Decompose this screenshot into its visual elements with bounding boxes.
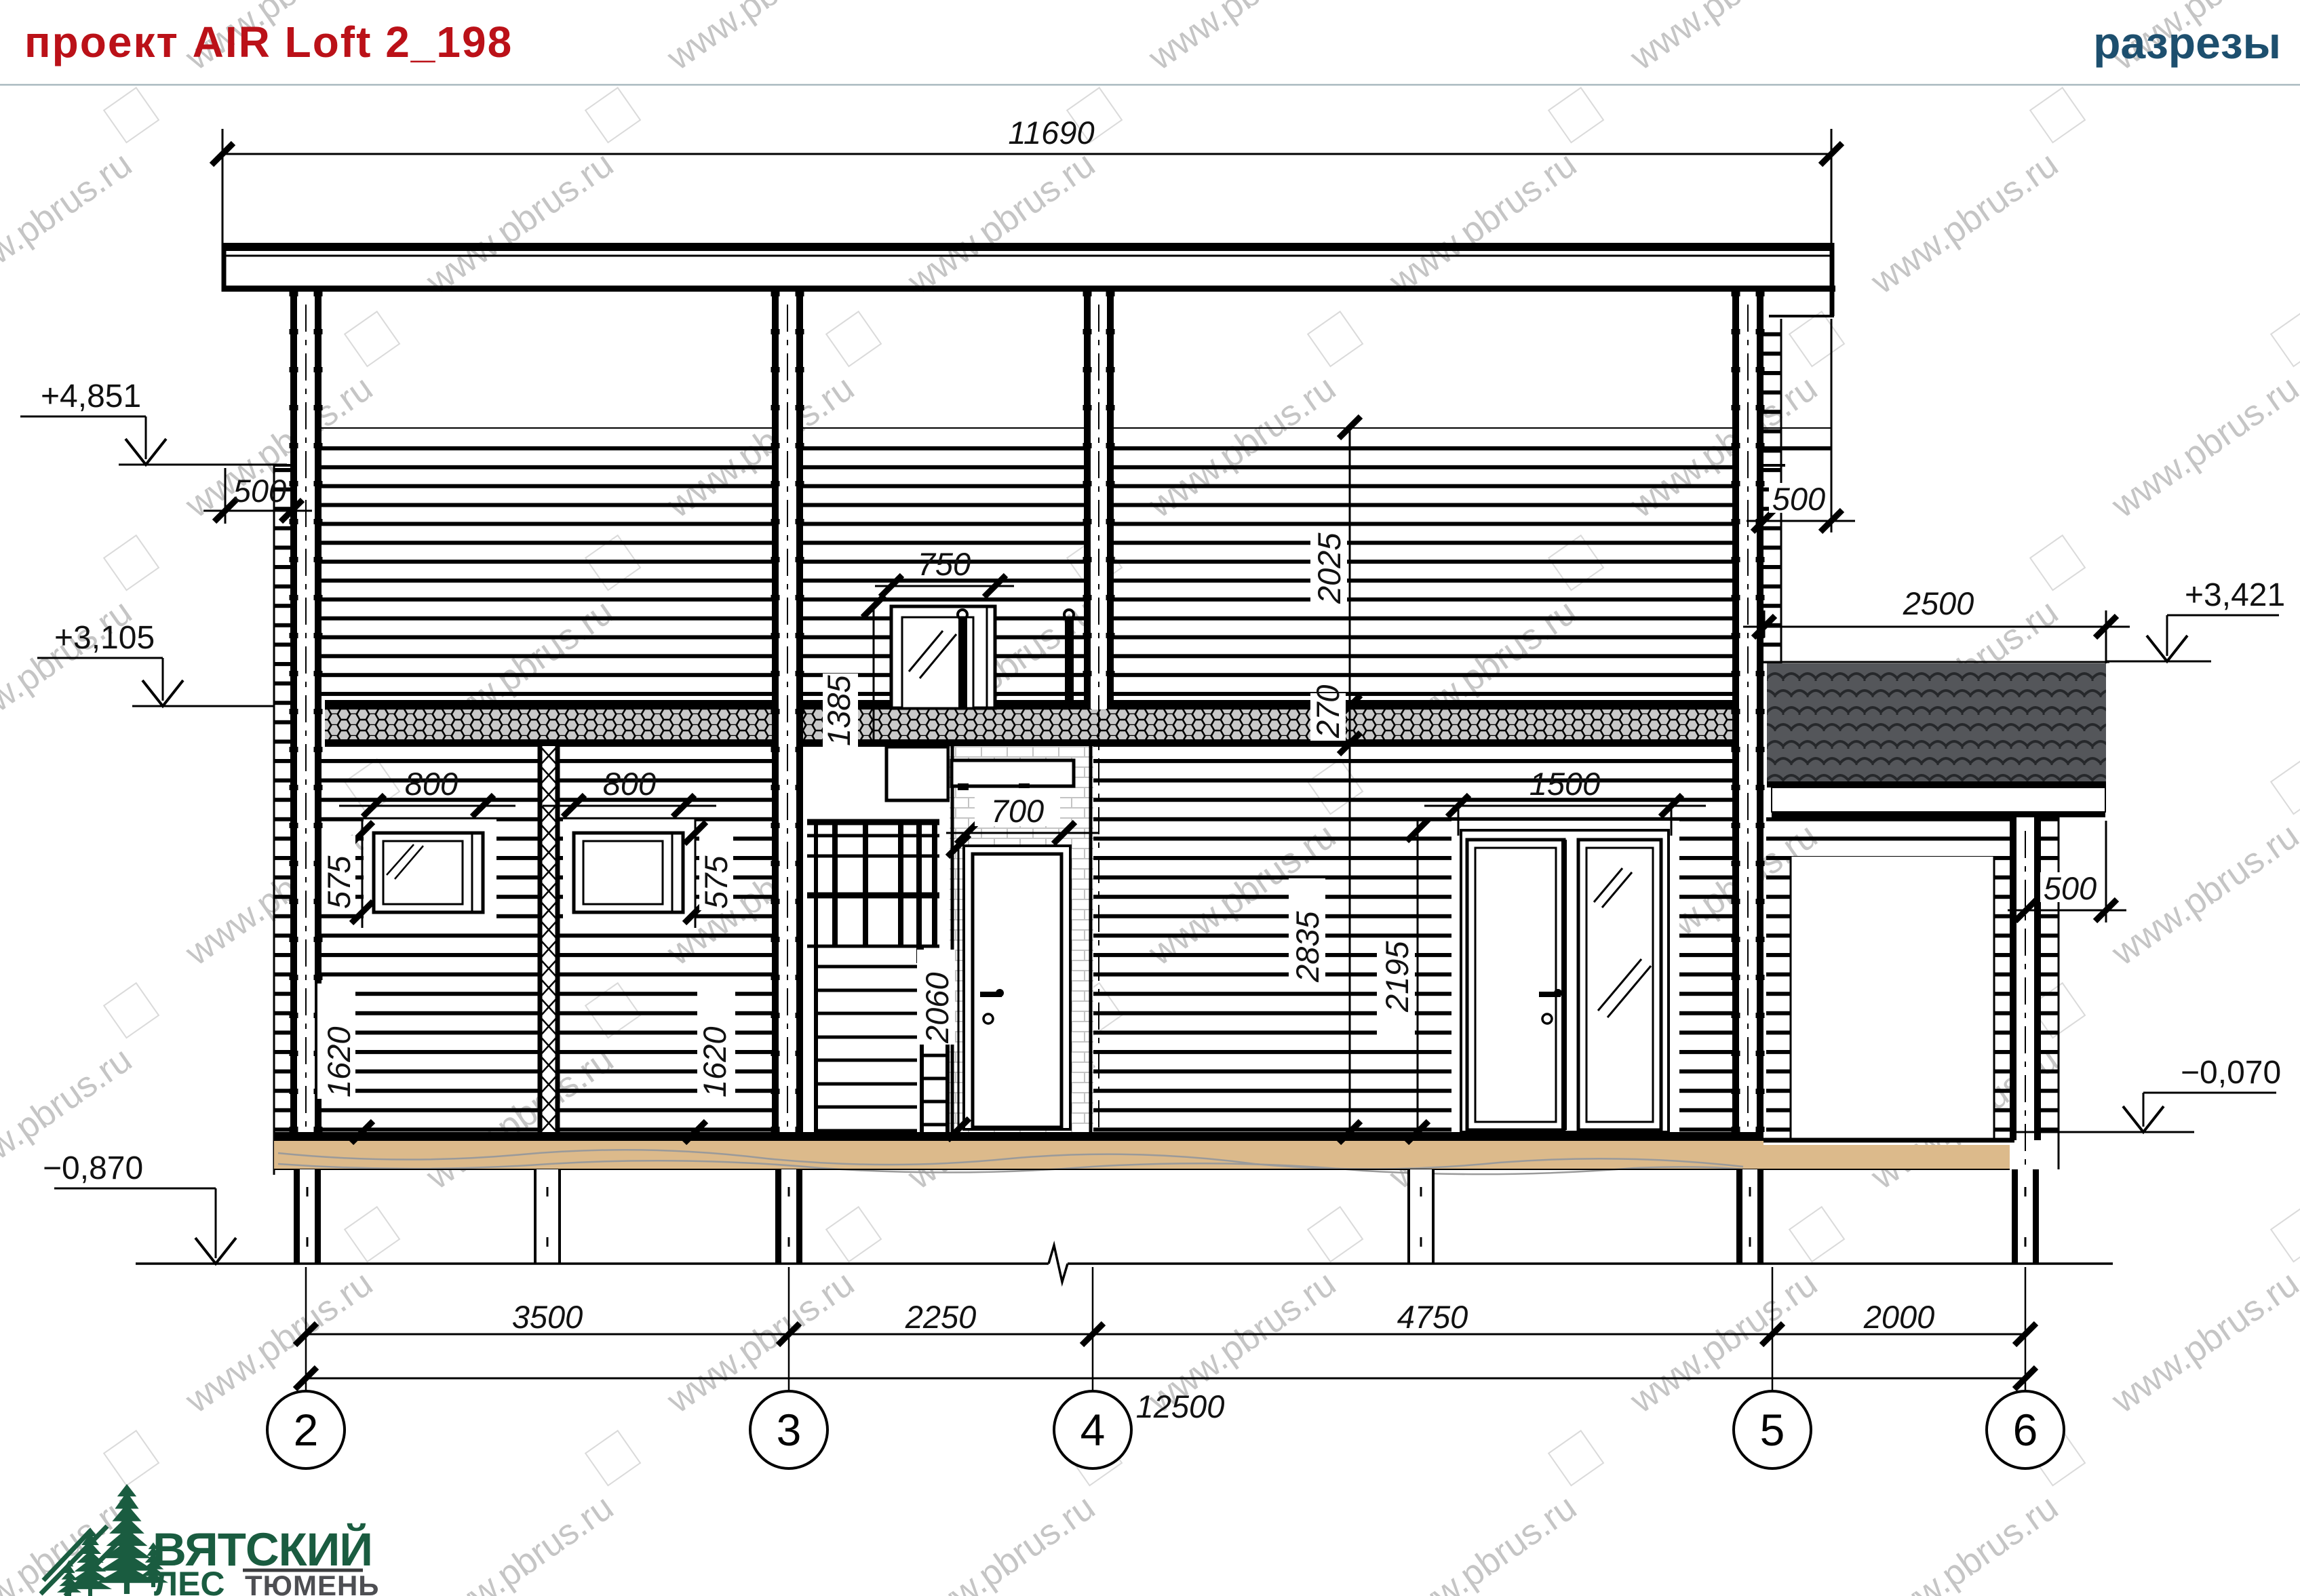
svg-text:575: 575 [698,855,734,909]
svg-text:ЛЕС: ЛЕС [154,1565,225,1596]
svg-text:6: 6 [2013,1405,2038,1455]
svg-text:2060: 2060 [919,972,955,1044]
svg-text:1620: 1620 [321,1026,357,1097]
svg-text:3500: 3500 [512,1299,583,1335]
svg-text:11690: 11690 [1008,115,1094,151]
svg-text:2195: 2195 [1379,941,1415,1013]
svg-text:2025: 2025 [1311,532,1347,604]
svg-text:3: 3 [777,1405,802,1455]
svg-text:500: 500 [2044,870,2097,906]
svg-text:5: 5 [1760,1405,1785,1455]
svg-text:270: 270 [1310,685,1346,739]
svg-text:500: 500 [1772,481,1825,517]
svg-text:−0,070: −0,070 [2181,1055,2281,1091]
svg-text:2250: 2250 [905,1299,977,1335]
svg-text:800: 800 [603,766,656,802]
svg-text:4750: 4750 [1397,1299,1468,1335]
svg-text:2835: 2835 [1289,911,1325,983]
svg-text:500: 500 [233,473,286,509]
svg-text:−0,870: −0,870 [43,1150,143,1186]
svg-text:12500: 12500 [1136,1388,1225,1424]
svg-text:2: 2 [294,1405,319,1455]
svg-text:4: 4 [1080,1405,1106,1455]
svg-text:2500: 2500 [1903,585,1974,621]
svg-text:1385: 1385 [821,675,857,746]
svg-text:+3,105: +3,105 [54,620,155,656]
svg-text:+3,421: +3,421 [2185,577,2285,613]
svg-text:575: 575 [321,855,357,909]
svg-text:проект AIR Loft 2_198: проект AIR Loft 2_198 [24,18,513,66]
svg-text:1620: 1620 [697,1026,733,1097]
svg-text:750: 750 [918,546,971,582]
svg-text:1500: 1500 [1529,766,1601,802]
svg-text:2000: 2000 [1863,1299,1935,1335]
svg-text:700: 700 [991,793,1044,829]
svg-text:800: 800 [405,766,458,802]
svg-text:+4,851: +4,851 [41,378,141,414]
svg-text:ТЮМЕНЬ: ТЮМЕНЬ [245,1570,380,1596]
svg-text:разрезы: разрезы [2093,18,2281,68]
